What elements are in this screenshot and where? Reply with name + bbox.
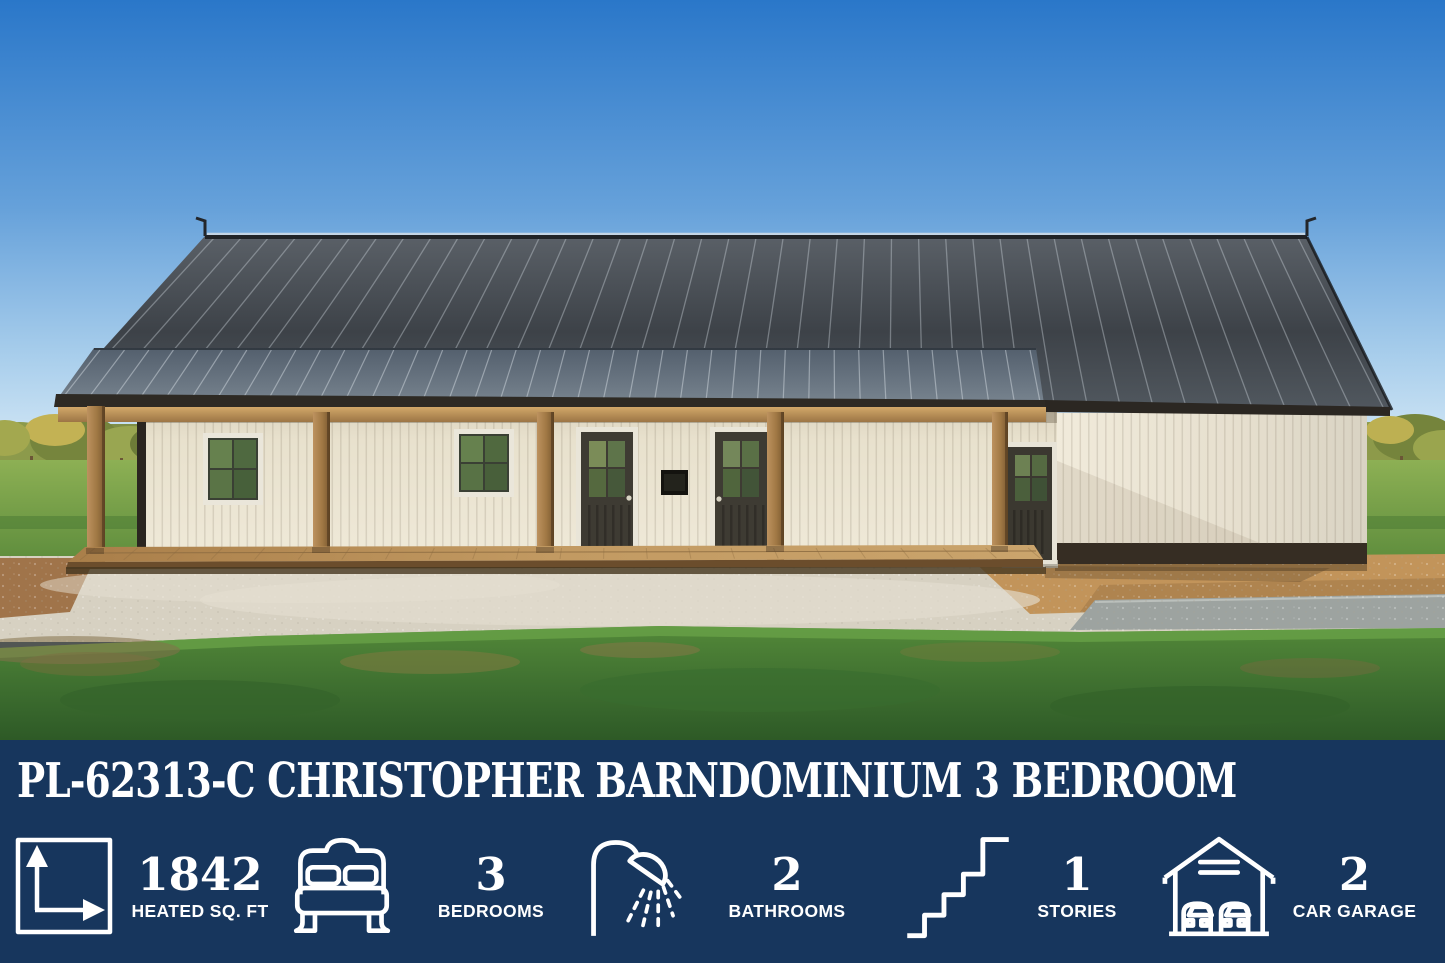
front-door-left xyxy=(576,427,638,557)
stat-bedrooms: 3 BEDROOMS xyxy=(286,825,584,947)
front-door-right xyxy=(710,427,772,557)
stairs-icon xyxy=(896,832,1020,940)
metal-roof xyxy=(54,218,1392,416)
stat-heated-sqft: 1842 HEATED SQ. FT xyxy=(14,825,286,947)
stat-car-garage: 2 CAR GARAGE xyxy=(1134,825,1431,947)
window-left xyxy=(203,433,263,505)
foreground-grass xyxy=(0,626,1445,742)
house-photo xyxy=(0,0,1445,742)
garage-icon xyxy=(1160,834,1278,938)
bed-icon xyxy=(286,834,398,938)
porch-deck xyxy=(66,545,1046,574)
bathrooms-value: 2 xyxy=(771,852,802,897)
stat-bathrooms: 2 BATHROOMS xyxy=(584,825,884,947)
bedrooms-value: 3 xyxy=(475,852,506,897)
shower-icon xyxy=(584,833,690,939)
sqft-value: 1842 xyxy=(137,852,262,897)
car-garage-value: 2 xyxy=(1339,852,1370,897)
bathrooms-label: BATHROOMS xyxy=(728,903,845,921)
window-center xyxy=(454,429,514,497)
info-banner: PL-62313-C CHRISTOPHER BARNDOMINIUM 3 BE… xyxy=(0,740,1445,963)
car-garage-label: CAR GARAGE xyxy=(1293,903,1417,921)
stories-label: STORIES xyxy=(1037,903,1116,921)
barndominium xyxy=(54,218,1392,582)
area-dimensions-icon xyxy=(14,835,114,937)
stories-value: 1 xyxy=(1061,852,1092,897)
spec-stats-row: 1842 HEATED SQ. FT 3 BEDROOMS xyxy=(14,825,1431,947)
listing-card: PL-62313-C CHRISTOPHER BARNDOMINIUM 3 BE… xyxy=(0,0,1445,963)
stat-stories: 1 STORIES xyxy=(884,825,1134,947)
bedrooms-label: BEDROOMS xyxy=(438,903,544,921)
plan-title: PL-62313-C CHRISTOPHER BARNDOMINIUM 3 BE… xyxy=(17,757,1120,805)
sqft-label: HEATED SQ. FT xyxy=(131,903,268,921)
